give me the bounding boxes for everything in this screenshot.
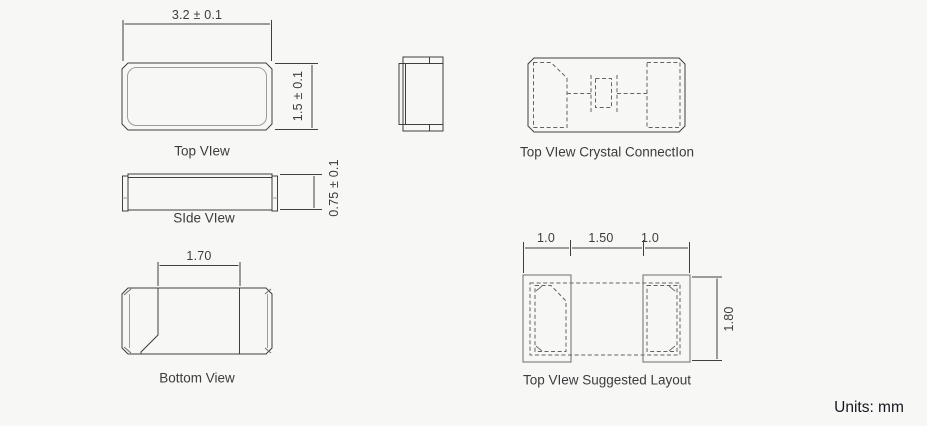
top-view-label: Top VIew (174, 144, 230, 159)
diagram-linework (0, 0, 927, 426)
bottom-view-pad-gap-dimension: 1.70 (186, 249, 211, 263)
layout-left-pad-width-dimension: 1.0 (537, 231, 555, 245)
crystal-connection-drawing (528, 58, 685, 132)
package-drawing-sheet: 3.2 ± 0.1 1.5 ± 0.1 Top VIew 0.75 ± 0.1 … (0, 0, 927, 426)
layout-right-pad-width-dimension: 1.0 (641, 231, 659, 245)
top-view-width-dimension: 3.2 ± 0.1 (172, 8, 222, 22)
side-view-drawing (123, 174, 323, 211)
bottom-view-drawing (122, 262, 272, 354)
crystal-connection-label: Top VIew Crystal ConnectIon (520, 145, 694, 160)
bottom-view-label: Bottom View (159, 371, 235, 386)
side-view-height-dimension: 0.75 ± 0.1 (327, 159, 341, 217)
suggested-layout-drawing (523, 240, 722, 362)
layout-height-dimension: 1.80 (722, 306, 736, 331)
top-view-drawing (122, 20, 318, 130)
units-note: Units: mm (834, 399, 904, 417)
end-view-drawing (399, 57, 443, 131)
top-view-height-dimension: 1.5 ± 0.1 (291, 71, 305, 121)
suggested-layout-label: Top VIew Suggested Layout (523, 373, 691, 388)
layout-pad-gap-dimension: 1.50 (588, 231, 613, 245)
side-view-label: SIde VIew (173, 211, 235, 226)
